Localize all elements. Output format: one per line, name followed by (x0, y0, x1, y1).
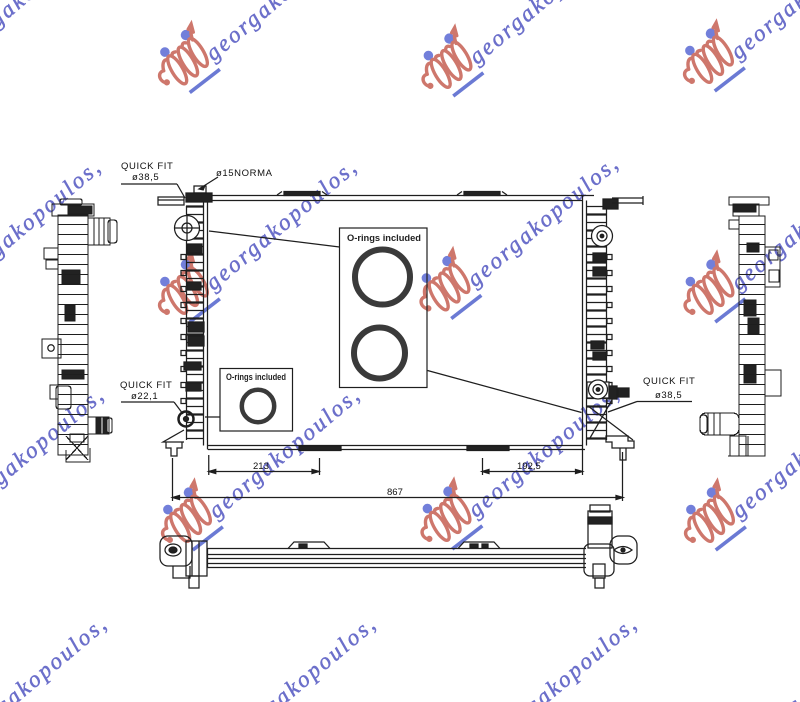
svg-text:ø38,5: ø38,5 (132, 172, 159, 183)
svg-text:QUICK FIT: QUICK FIT (120, 380, 172, 391)
svg-text:O-rings included: O-rings included (226, 372, 286, 382)
svg-text:ø38,5: ø38,5 (655, 390, 682, 401)
svg-text:867: 867 (387, 487, 403, 498)
svg-text:ø22,1: ø22,1 (131, 391, 158, 402)
svg-text:213: 213 (253, 461, 269, 472)
svg-text:O-rings included: O-rings included (347, 233, 421, 243)
svg-text:192,5: 192,5 (517, 461, 541, 472)
svg-text:QUICK FIT: QUICK FIT (643, 376, 695, 387)
svg-text:QUICK FIT: QUICK FIT (121, 161, 173, 172)
svg-text:ø15NORMA: ø15NORMA (216, 168, 273, 179)
